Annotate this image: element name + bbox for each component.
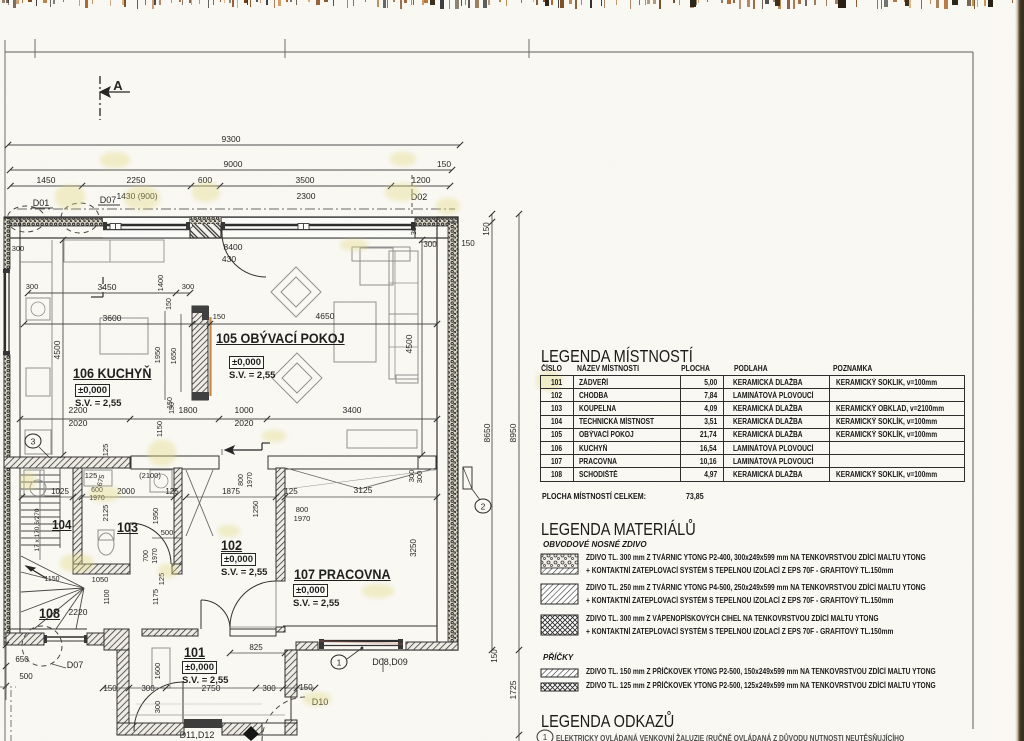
svg-text:300: 300 <box>182 282 195 291</box>
svg-text:2: 2 <box>481 502 486 512</box>
svg-text:1200: 1200 <box>412 175 431 185</box>
svg-text:2020: 2020 <box>69 418 88 428</box>
svg-text:9000: 9000 <box>224 159 243 169</box>
svg-text:9300: 9300 <box>222 134 241 144</box>
svg-text:300: 300 <box>407 470 416 483</box>
svg-text:1970: 1970 <box>294 514 311 523</box>
svg-text:3500: 3500 <box>296 175 315 185</box>
svg-text:125: 125 <box>165 487 179 496</box>
svg-text:17 x 170,6/270: 17 x 170,6/270 <box>34 508 41 551</box>
svg-text:150: 150 <box>166 298 173 310</box>
svg-text:(2100): (2100) <box>139 471 161 480</box>
svg-text:1000: 1000 <box>235 405 254 415</box>
svg-text:3400: 3400 <box>343 405 362 415</box>
svg-text:125: 125 <box>101 444 110 457</box>
svg-text:1970: 1970 <box>247 472 254 488</box>
svg-text:1100: 1100 <box>104 589 111 604</box>
svg-text:1050: 1050 <box>92 575 109 584</box>
svg-text:8400: 8400 <box>224 242 243 252</box>
svg-text:2250: 2250 <box>127 175 146 185</box>
svg-text:3600: 3600 <box>103 313 122 323</box>
svg-text:3125: 3125 <box>354 485 373 495</box>
svg-text:2220: 2220 <box>69 607 88 617</box>
svg-text:4500: 4500 <box>404 334 414 353</box>
svg-text:300: 300 <box>409 223 418 236</box>
svg-text:1: 1 <box>337 658 342 668</box>
svg-text:800: 800 <box>296 505 309 514</box>
svg-text:300: 300 <box>423 240 437 249</box>
svg-text:4500: 4500 <box>52 340 62 359</box>
svg-text:1600: 1600 <box>153 663 162 680</box>
svg-text:150: 150 <box>213 312 226 321</box>
svg-text:150: 150 <box>299 683 313 692</box>
svg-text:1175: 1175 <box>151 589 160 605</box>
svg-text:500: 500 <box>161 528 174 537</box>
svg-text:1450: 1450 <box>37 175 56 185</box>
svg-text:3: 3 <box>31 437 36 447</box>
svg-text:3450: 3450 <box>98 282 117 292</box>
svg-text:125: 125 <box>85 471 98 480</box>
svg-text:1950: 1950 <box>151 508 160 525</box>
svg-text:150: 150 <box>461 239 475 248</box>
svg-text:1950: 1950 <box>153 347 162 364</box>
svg-text:D07: D07 <box>67 660 84 670</box>
svg-text:1650: 1650 <box>169 348 178 365</box>
svg-text:150: 150 <box>490 649 499 663</box>
svg-text:2125: 2125 <box>101 505 110 522</box>
svg-text:150: 150 <box>437 159 451 169</box>
svg-text:1400: 1400 <box>156 275 165 292</box>
svg-text:1725: 1725 <box>508 680 518 699</box>
svg-text:1970: 1970 <box>152 548 159 564</box>
svg-text:D11,D12: D11,D12 <box>180 730 215 740</box>
svg-text:1800: 1800 <box>179 405 198 415</box>
svg-text:300: 300 <box>26 282 39 291</box>
svg-text:700: 700 <box>143 550 150 562</box>
svg-text:800: 800 <box>238 474 245 486</box>
svg-text:D08,D09: D08,D09 <box>372 657 408 667</box>
svg-text:150: 150 <box>169 402 176 414</box>
svg-text:A: A <box>113 78 123 93</box>
svg-text:3250: 3250 <box>409 539 418 557</box>
svg-text:300: 300 <box>415 471 424 484</box>
svg-text:4650: 4650 <box>316 311 335 321</box>
svg-text:1875: 1875 <box>222 487 240 496</box>
svg-text:2020: 2020 <box>235 418 254 428</box>
svg-text:650: 650 <box>15 655 29 664</box>
svg-text:1250: 1250 <box>251 501 260 518</box>
svg-text:8650: 8650 <box>482 423 492 442</box>
svg-text:1: 1 <box>543 733 548 741</box>
svg-text:D07: D07 <box>100 195 117 205</box>
svg-text:1150: 1150 <box>155 421 164 437</box>
svg-text:825: 825 <box>249 643 263 652</box>
svg-text:1025: 1025 <box>51 487 69 496</box>
svg-text:125: 125 <box>284 487 298 496</box>
svg-text:2300: 2300 <box>297 191 316 201</box>
svg-text:D01: D01 <box>33 198 50 208</box>
svg-text:300: 300 <box>262 684 276 693</box>
svg-text:500: 500 <box>19 672 33 681</box>
svg-text:300: 300 <box>141 684 155 693</box>
svg-text:150: 150 <box>482 222 491 236</box>
svg-text:300: 300 <box>153 701 162 714</box>
svg-text:1150: 1150 <box>44 576 59 583</box>
svg-text:300: 300 <box>12 244 25 253</box>
svg-text:430: 430 <box>222 254 236 264</box>
svg-text:8950: 8950 <box>508 423 518 442</box>
